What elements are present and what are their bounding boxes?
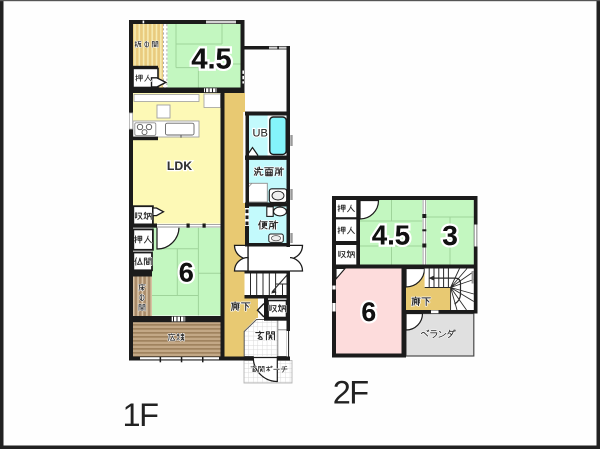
svg-text:UB: UB bbox=[253, 128, 268, 140]
svg-text:4.5: 4.5 bbox=[372, 219, 410, 250]
svg-text:LDK: LDK bbox=[167, 159, 192, 173]
svg-text:6: 6 bbox=[179, 258, 194, 288]
svg-text:4.5: 4.5 bbox=[191, 44, 231, 76]
svg-text:1F: 1F bbox=[123, 397, 159, 433]
svg-text:3: 3 bbox=[442, 220, 458, 251]
svg-text:6: 6 bbox=[361, 297, 376, 327]
svg-text:2F: 2F bbox=[333, 375, 369, 411]
